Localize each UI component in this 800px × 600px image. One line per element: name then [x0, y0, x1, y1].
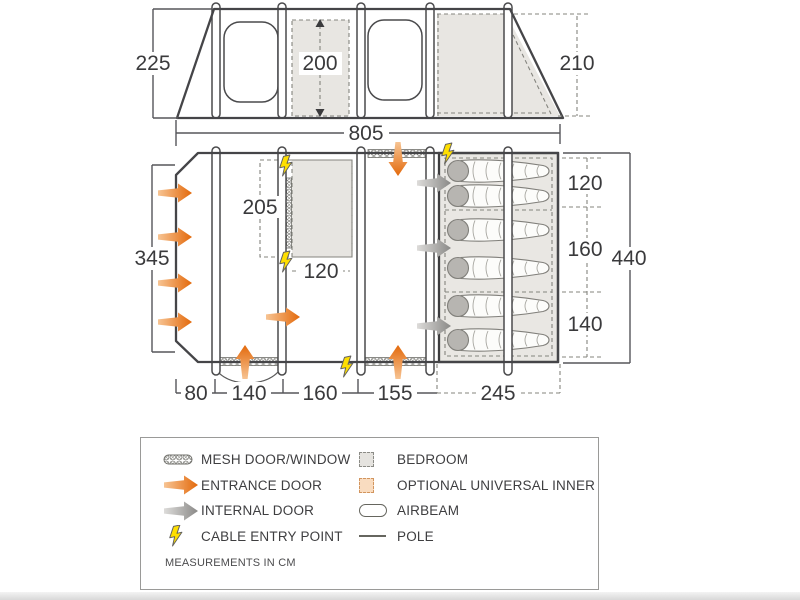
dim-total-width: 805	[176, 120, 560, 146]
legend-label: BEDROOM	[397, 452, 468, 467]
svg-text:345: 345	[134, 247, 169, 270]
internal-door-icon	[163, 501, 201, 521]
legend-item-cable-entry: CABLE ENTRY POINT	[163, 524, 350, 550]
bedroom-left-shading	[292, 160, 352, 257]
legend-column-right: BEDROOM OPTIONAL UNIVERSAL INNER AIRBEAM…	[359, 447, 595, 549]
elevation-window-1	[224, 22, 278, 102]
airbeam-icon	[359, 504, 397, 517]
legend-item-bedroom: BEDROOM	[359, 447, 595, 473]
legend-label: OPTIONAL UNIVERSAL INNER	[397, 478, 595, 493]
entrance-door-icon	[163, 475, 201, 495]
dim-bottom-sections: 80 140 160 155 245	[176, 364, 560, 405]
legend-label: CABLE ENTRY POINT	[201, 529, 343, 544]
svg-text:120: 120	[303, 260, 338, 283]
dim-elevation-left: 225	[135, 52, 170, 75]
tent-floorplan-diagram: 225 200 210 805	[0, 0, 800, 432]
dim-elevation-right: 210	[559, 52, 594, 75]
dim-elevation-center: 200	[302, 52, 337, 75]
dim-bedroom-height: 205	[238, 196, 282, 219]
legend-item-airbeam: AIRBEAM	[359, 498, 595, 524]
svg-text:245: 245	[480, 382, 515, 405]
optional-inner-icon	[359, 478, 397, 493]
legend-item-entrance-door: ENTRANCE DOOR	[163, 473, 350, 499]
elevation-window-2	[368, 20, 422, 100]
svg-text:160: 160	[567, 238, 602, 261]
legend-label: ENTRANCE DOOR	[201, 478, 322, 493]
svg-text:440: 440	[611, 247, 646, 270]
mesh-icon	[163, 454, 201, 465]
legend-label: MESH DOOR/WINDOW	[201, 452, 350, 467]
dim-berths: 120 160 140	[562, 158, 607, 357]
legend-item-pole: POLE	[359, 524, 595, 550]
legend-label: AIRBEAM	[397, 503, 459, 518]
svg-text:160: 160	[302, 382, 337, 405]
bottom-band	[0, 592, 800, 600]
elevation-view: 225 200 210	[132, 3, 598, 118]
cable-entry-icon	[163, 525, 201, 547]
measurements-note: MEASUREMENTS IN CM	[165, 557, 296, 569]
legend-item-mesh: MESH DOOR/WINDOW	[163, 447, 350, 473]
svg-text:120: 120	[567, 172, 602, 195]
svg-text:80: 80	[184, 382, 207, 405]
svg-text:140: 140	[231, 382, 266, 405]
svg-text:205: 205	[242, 196, 277, 219]
legend-label: INTERNAL DOOR	[201, 503, 314, 518]
elevation-bedroom-shading	[437, 14, 560, 116]
legend-box: MESH DOOR/WINDOW ENTRANCE DOOR INTERNAL …	[140, 437, 599, 590]
svg-text:140: 140	[567, 313, 602, 336]
floorplan-view: 345 205 120 120 160 140 440	[130, 142, 652, 405]
page: 225 200 210 805	[0, 0, 800, 600]
svg-text:805: 805	[348, 122, 383, 145]
pole-icon	[359, 535, 397, 537]
legend-item-internal-door: INTERNAL DOOR	[163, 498, 350, 524]
bedroom-icon	[359, 452, 397, 467]
legend-label: POLE	[397, 529, 434, 544]
dim-bedroom-width: 120	[292, 260, 350, 283]
legend-column-left: MESH DOOR/WINDOW ENTRANCE DOOR INTERNAL …	[163, 447, 350, 549]
legend-item-optional-inner: OPTIONAL UNIVERSAL INNER	[359, 473, 595, 499]
svg-text:155: 155	[377, 382, 412, 405]
